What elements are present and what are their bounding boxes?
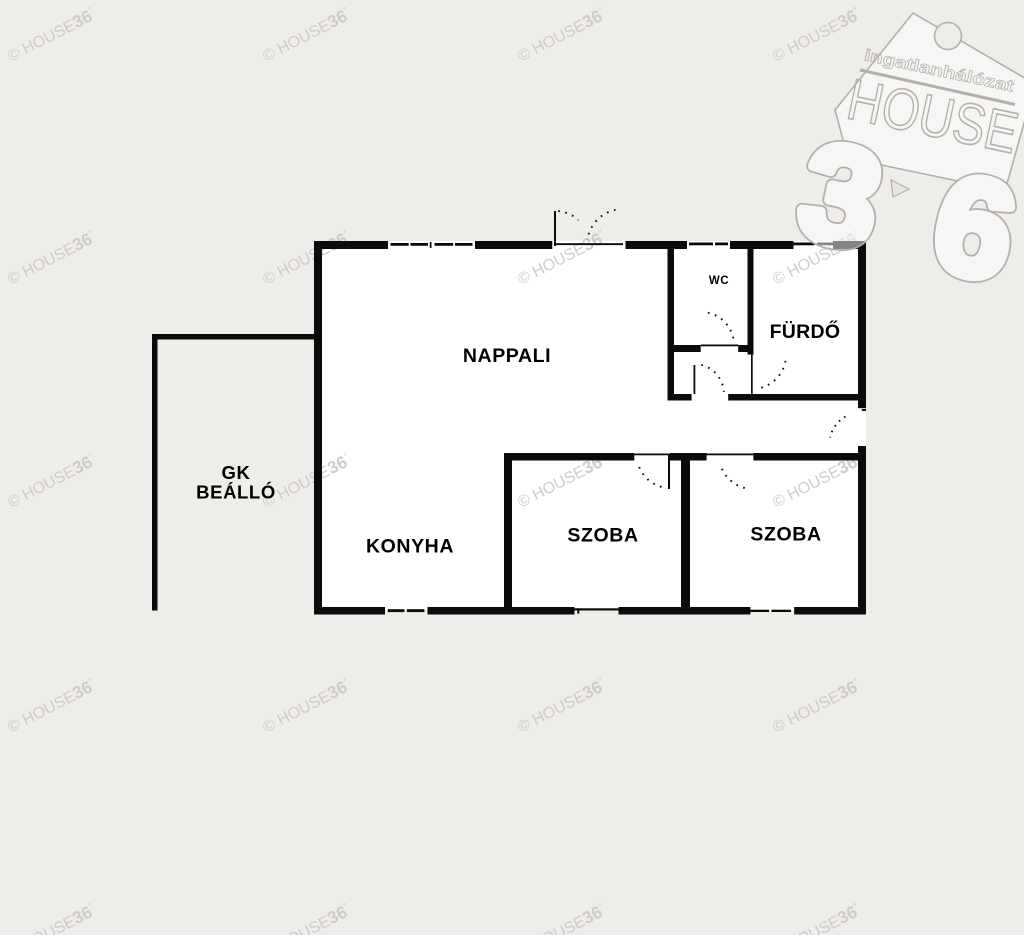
svg-text:WC: WC bbox=[709, 275, 729, 287]
svg-text:KONYHA: KONYHA bbox=[366, 535, 454, 557]
svg-text:BEÁLLÓ: BEÁLLÓ bbox=[196, 482, 276, 503]
svg-text:SZOBA: SZOBA bbox=[750, 524, 821, 546]
svg-text:FÜRDŐ: FÜRDŐ bbox=[770, 320, 841, 343]
svg-text:GK: GK bbox=[222, 462, 251, 483]
svg-text:SZOBA: SZOBA bbox=[567, 525, 638, 547]
svg-text:NAPPALI: NAPPALI bbox=[463, 345, 551, 367]
